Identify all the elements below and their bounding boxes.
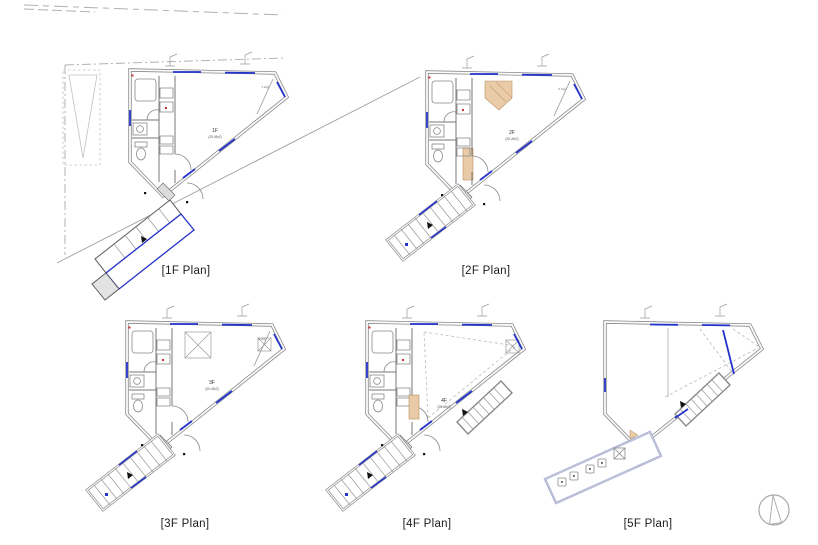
floor-plan-3f: 3F (25.45㎡) 2.3㎡ — [87, 304, 284, 510]
corner-label: 2.3㎡ — [558, 86, 565, 91]
room-label: 4F — [441, 398, 447, 404]
floor-plan-5f — [545, 304, 762, 503]
level-marker — [640, 304, 727, 318]
road-line-short — [24, 9, 95, 12]
plan-label-2f: [2F Plan] — [416, 265, 556, 277]
building-outline — [605, 322, 762, 448]
plan-label-3f: [3F Plan] — [115, 518, 255, 530]
floor-plan-2f: 2F (25.45㎡) 2.3㎡ — [387, 54, 584, 260]
corner-label: 7.2㎡ — [261, 84, 268, 89]
room-area: (25.45㎡) — [208, 134, 221, 139]
plan-label-4f: [4F Plan] — [357, 518, 497, 530]
room-area: (25.45㎡) — [205, 386, 218, 391]
stair-wing — [87, 435, 174, 510]
level-marker — [165, 52, 252, 66]
floor-plan-1f: 1F (25.45㎡) 7.2㎡ — [57, 52, 420, 300]
floor-plan-4f: 4F (25.45㎡) — [327, 304, 524, 510]
plan-label-5f: [5F Plan] — [578, 518, 718, 530]
stair-wing — [327, 435, 414, 510]
room-area: (25.45㎡) — [505, 136, 518, 141]
parking-space — [63, 70, 100, 165]
room-label: 2F — [509, 130, 515, 136]
corner-label: 2.3㎡ — [258, 336, 265, 341]
north-arrow-icon — [759, 495, 789, 525]
road-line — [24, 5, 283, 15]
level-marker — [462, 54, 549, 68]
floor-plan-sheet: { "sheet": { "type": "architectural-floo… — [0, 0, 818, 545]
level-marker — [162, 304, 249, 318]
road-boundary-lines — [24, 5, 283, 15]
plan-label-1f: [1F Plan] — [116, 265, 256, 277]
room-label: 1F — [212, 128, 218, 134]
stair-wing — [387, 185, 474, 260]
room-area: (25.45㎡) — [437, 404, 450, 409]
tan-closet-strip — [409, 395, 419, 419]
level-marker — [402, 304, 489, 318]
room-label: 3F — [209, 380, 215, 386]
roof-terrace — [545, 432, 661, 503]
